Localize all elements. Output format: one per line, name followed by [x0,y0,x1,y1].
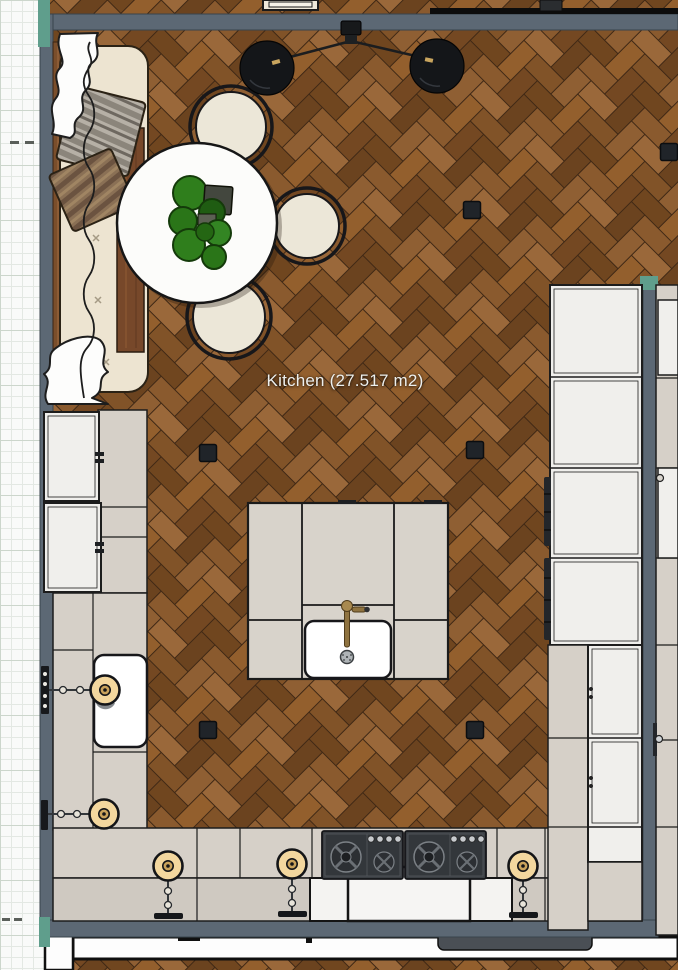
cabinet-door-white[interactable] [44,412,99,501]
left-cabinet-run[interactable] [44,410,147,830]
room-area-label: Kitchen (27.517 m2) [267,371,424,391]
wall-top[interactable] [48,14,678,30]
pendant-shade-icon [240,41,294,95]
upper-room-tray[interactable] [263,0,318,10]
appliance-front[interactable] [310,878,348,921]
spotlight-icon[interactable] [661,144,678,161]
door-knob-icon[interactable] [656,736,663,743]
island-handle [338,500,356,504]
pendant-shade-icon [410,39,464,93]
teal-wall-segment-top-left[interactable] [38,0,50,47]
door-knob-icon[interactable] [657,475,664,482]
tall-unit-handle-rail [544,558,551,640]
spotlight-icon[interactable] [467,442,484,459]
spotlight-icon[interactable] [467,722,484,739]
pendant-stem [345,35,357,44]
right-cabinet-run[interactable] [544,285,642,930]
kitchen-island[interactable] [248,500,448,679]
potted-plant[interactable] [169,176,233,269]
island-handle [424,500,442,504]
pendant-mount [341,21,361,35]
spotlight-icon[interactable] [200,445,217,462]
floor-plan-canvas: Kitchen (27.517 m2) [0,0,678,970]
right-room-cabinets[interactable] [653,285,678,935]
upper-room-dark-box[interactable] [540,0,562,11]
measurement-dashes [2,141,34,921]
spotlight-icon[interactable] [200,722,217,739]
floor-plan-drawing [0,0,678,970]
appliance-front[interactable] [470,878,512,921]
spotlight-icon[interactable] [464,202,481,219]
cabinet-door-white[interactable] [44,503,101,592]
teal-wall-segment-bottom-left[interactable] [39,917,50,947]
